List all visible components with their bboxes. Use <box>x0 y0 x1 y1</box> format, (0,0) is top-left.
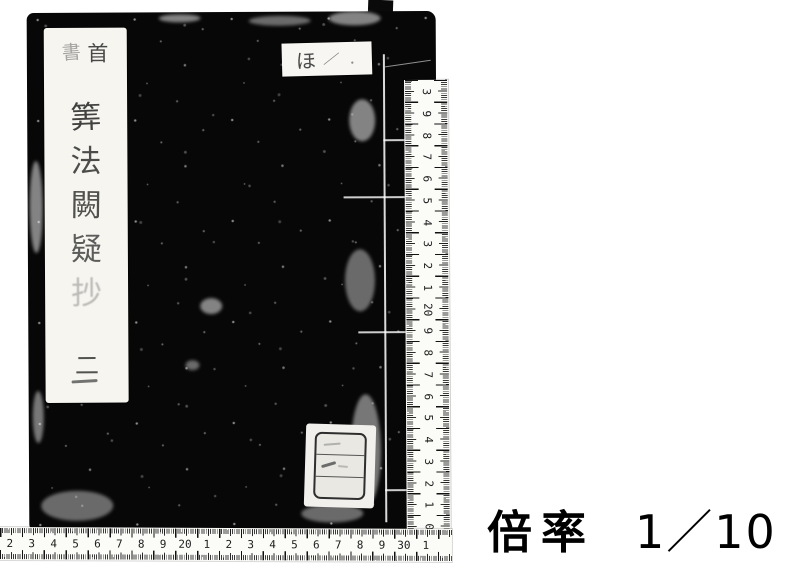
title-header-char-left: 書 <box>61 37 82 65</box>
title-characters: 筭法闕疑抄 <box>44 92 128 312</box>
ruler-number: 1 <box>196 536 218 553</box>
wear-patch <box>41 491 113 521</box>
binding-thread-vertical <box>383 54 387 522</box>
ruler-number: 3 <box>240 536 262 553</box>
title-character: 抄 <box>71 268 102 312</box>
title-character: 筭 <box>69 91 102 136</box>
ruler-number: 4 <box>43 535 65 552</box>
horizontal-ruler: 2345678920123456789301 <box>0 527 452 562</box>
title-slip: 書 首 筭法闕疑抄 二 <box>44 28 129 403</box>
horizontal-ruler-numbers: 2345678920123456789301 <box>0 535 437 554</box>
book-cover: 書 首 筭法闕疑抄 二 ほ ／ ． <box>27 11 439 534</box>
ruler-number: 20 <box>174 536 196 553</box>
wear-patch <box>345 249 375 311</box>
ruler-number: 8 <box>349 537 371 554</box>
title-character: 疑 <box>71 224 102 268</box>
ruler-number: 3 <box>21 535 43 552</box>
ruler-number: 5 <box>283 536 305 553</box>
wear-patch <box>159 14 201 22</box>
ruler-number: 5 <box>65 535 87 552</box>
title-character: 闕 <box>70 180 102 224</box>
call-number-row <box>315 476 364 498</box>
volume-number: 二 <box>45 346 128 381</box>
shelf-mark-character: ほ <box>296 45 317 75</box>
ruler-number: 1 <box>415 537 437 554</box>
wear-patch <box>29 161 42 253</box>
ruler-number: 9 <box>152 536 174 553</box>
archival-photo: 書 首 筭法闕疑抄 二 ほ ／ ． <box>0 0 800 565</box>
ruler-number: 9 <box>371 537 393 554</box>
wear-patch <box>249 16 311 26</box>
ruler-number: 8 <box>130 536 152 553</box>
faint-pencil-mark <box>338 465 348 468</box>
ruler-number: 7 <box>327 536 349 553</box>
shelf-mark-stroke: ／ <box>323 48 340 71</box>
vertical-ruler: 3987654321209876543210 <box>404 80 451 530</box>
shelf-mark-dot: ． <box>349 48 364 68</box>
ruler-number: 2 <box>218 536 240 553</box>
ruler-number: 30 <box>393 537 415 554</box>
magnification-caption: 倍率 1／10 <box>487 496 777 562</box>
faint-pencil-mark <box>321 461 336 468</box>
call-number-row <box>316 455 365 478</box>
ruler-number: 2 <box>0 535 21 552</box>
binding-corner-thread <box>385 60 431 68</box>
call-number-frame <box>313 432 367 501</box>
title-slip-header: 書 首 <box>44 38 127 68</box>
shelf-mark-label: ほ ／ ． <box>281 41 372 76</box>
ruler-number: 4 <box>262 536 284 553</box>
magnification-label: 倍率 <box>487 496 595 561</box>
ink-smudge <box>72 379 98 383</box>
call-number-row <box>316 434 365 457</box>
wear-patch <box>329 11 381 25</box>
wear-patch <box>349 99 375 141</box>
faint-pencil-mark <box>324 443 341 446</box>
wear-patch <box>33 391 44 443</box>
magnification-value: 1／10 <box>635 496 777 562</box>
title-character: 法 <box>70 136 101 180</box>
call-number-label <box>304 423 376 508</box>
ruler-number: 6 <box>86 535 108 552</box>
ruler-number: 6 <box>305 536 327 553</box>
ruler-number: 7 <box>108 535 130 552</box>
wear-patch <box>185 360 199 370</box>
wear-patch <box>200 298 222 314</box>
vertical-ruler-numbers: 3987654321209876543210 <box>404 81 451 538</box>
title-header-char-right: 首 <box>87 38 108 68</box>
